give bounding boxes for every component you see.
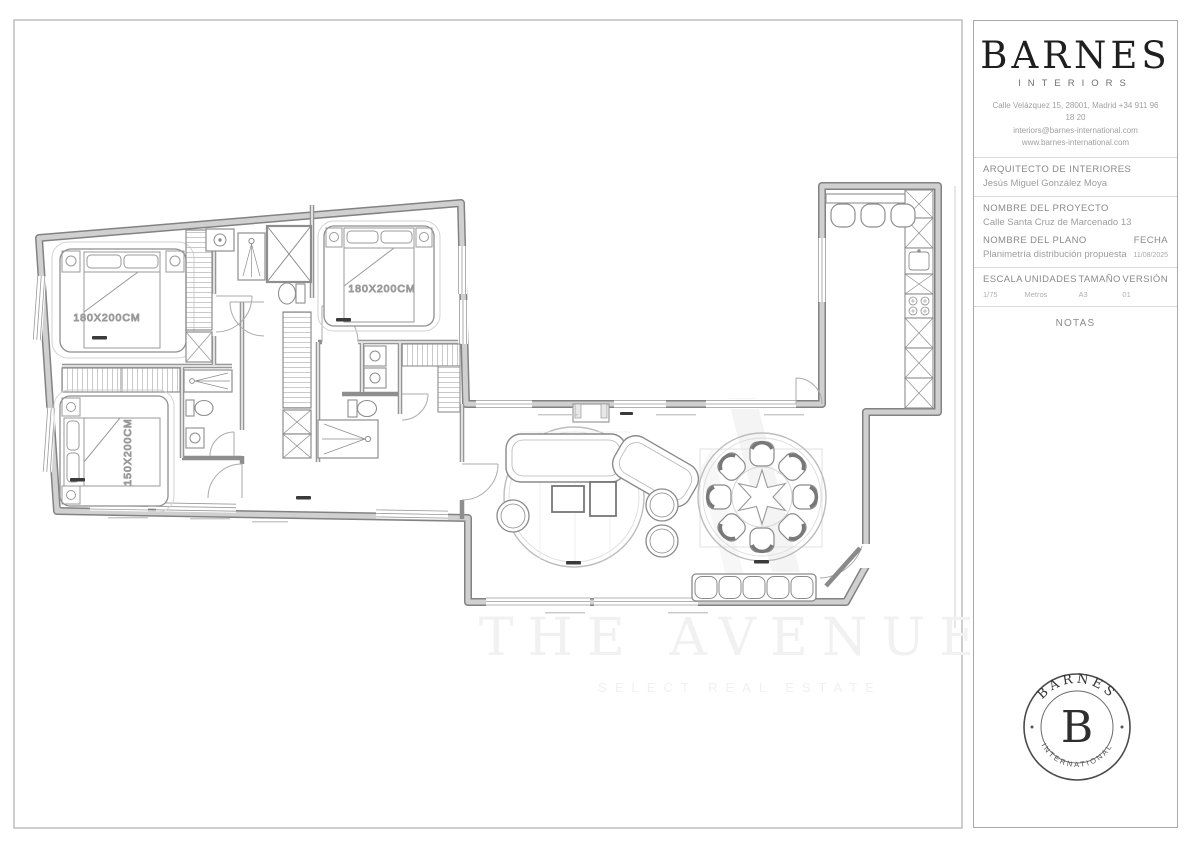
plan-sheet: 180X200CM (0, 0, 1191, 842)
date-label: FECHA (1134, 235, 1168, 246)
elevator-icon (267, 226, 311, 282)
door-bedroom3 (208, 464, 242, 498)
stamp-arc-top: BARNES (1035, 672, 1120, 703)
brand-logo: BARNES INTERIORS (974, 21, 1177, 89)
stamp: BARNES INTERNATIONAL B (1020, 669, 1134, 790)
door-bath3 (210, 432, 234, 456)
bedroom-1: 180X200CM (52, 242, 194, 358)
date-value: 11/08/2025 (1133, 252, 1168, 259)
title-block-panel: BARNES INTERIORS Calle Velázquez 15, 280… (973, 20, 1178, 828)
spec-unidades: UNIDADES Metros (1025, 274, 1077, 299)
spec-tamano: TAMAÑO A3 (1078, 274, 1120, 299)
door-closet2 (402, 394, 428, 420)
shower-icon (318, 420, 378, 458)
bed-size-label-2: 180X200CM (348, 283, 415, 295)
divider (974, 157, 1177, 158)
vanity-basin (364, 368, 386, 388)
walkin-closet (402, 344, 460, 412)
bar-stool (831, 204, 855, 227)
door-bedroom1 (216, 296, 252, 332)
project-section: NOMBRE DEL PROYECTO Calle Santa Cruz de … (974, 203, 1177, 228)
window-bottom-2 (156, 501, 236, 512)
wall-pillar (573, 404, 609, 422)
divider (974, 196, 1177, 197)
window-bed2-right-1 (457, 246, 467, 294)
barnes-stamp-seal: BARNES INTERNATIONAL B (1020, 669, 1134, 785)
toilet-icon (279, 283, 306, 304)
bed-size-label-3: 150X200CM (122, 418, 134, 485)
spec-escala: ESCALA 1/75 (983, 274, 1023, 299)
brand-name: BARNES (974, 37, 1177, 74)
window-living-top-3 (706, 399, 796, 409)
unidades-value: Metros (1025, 290, 1077, 299)
bedroom-3: 150X200CM (54, 368, 180, 512)
stove-icon (905, 294, 933, 318)
window-living-bottom-1 (486, 596, 590, 607)
bathroom-hall (206, 226, 311, 304)
unidades-label: UNIDADES (1025, 274, 1077, 285)
contact-address: Calle Velázquez 15, 28001, Madrid +34 91… (974, 100, 1177, 112)
bar-stool (861, 204, 885, 227)
watermark-subtitle: SELECT REAL ESTATE (598, 680, 882, 695)
bed-size-label-1: 180X200CM (73, 312, 140, 324)
living-room (497, 427, 704, 567)
floor-plan-drawing: 180X200CM (0, 0, 970, 842)
divider (974, 267, 1177, 268)
bathroom-2 (318, 344, 460, 458)
vanity-basin (364, 346, 386, 366)
architect-value: Jesús Miguel González Moya (983, 178, 1168, 189)
project-label: NOMBRE DEL PROYECTO (983, 203, 1168, 214)
contact-phone: 18 20 (974, 112, 1177, 124)
corridor-closet (283, 312, 311, 458)
version-value: 01 (1122, 290, 1168, 299)
escala-label: ESCALA (983, 274, 1023, 285)
plan-name-section: NOMBRE DEL PLANO FECHA Planimetría distr… (974, 235, 1177, 260)
spec-version: VERSIÓN 01 (1122, 274, 1168, 299)
kitchen-counter (826, 194, 915, 227)
version-label: VERSIÓN (1122, 274, 1168, 285)
toilet-icon (186, 400, 213, 416)
plan-name-label: NOMBRE DEL PLANO (983, 235, 1087, 246)
project-value: Calle Santa Cruz de Marcenado 13 (983, 217, 1168, 228)
window-living-bottom-2 (594, 596, 698, 607)
contact-info: Calle Velázquez 15, 28001, Madrid +34 91… (974, 100, 1177, 150)
sink-icon (186, 428, 204, 448)
notes-label: NOTAS (974, 318, 1177, 329)
window-bed2-right-2 (458, 300, 468, 344)
escala-value: 1/75 (983, 290, 1023, 299)
svg-text:BARNES: BARNES (1035, 672, 1120, 703)
bedroom-2: 180X200CM (318, 221, 440, 331)
window-bottom-3 (376, 508, 448, 519)
shower-icon (184, 370, 232, 392)
architect-label: ARQUITECTO DE INTERIORES (983, 164, 1168, 175)
door-entry (230, 302, 264, 336)
divider (974, 306, 1177, 307)
contact-email: interiors@barnes-international.com (974, 125, 1177, 137)
bathroom-3 (184, 370, 232, 448)
window-living-top-1 (476, 399, 532, 409)
plan-name-value: Planimetría distribución propuesta (983, 249, 1127, 260)
specs-row: ESCALA 1/75 UNIDADES Metros TAMAÑO A3 VE… (974, 274, 1177, 299)
coffee-table (590, 482, 616, 516)
brand-subtitle: INTERIORS (974, 78, 1177, 89)
stamp-monogram: B (1061, 702, 1093, 753)
coffee-table (552, 486, 584, 512)
bench (692, 574, 816, 601)
toilet-icon (348, 400, 377, 417)
architect-section: ARQUITECTO DE INTERIORES Jesús Miguel Go… (974, 164, 1177, 189)
contact-website: www.barnes-international.com (974, 137, 1177, 149)
kitchen (826, 190, 933, 408)
door-living-passage (462, 464, 498, 500)
watermark-title: THE AVENUE (479, 608, 970, 668)
tamano-value: A3 (1078, 290, 1120, 299)
window-kitchen-left (817, 238, 827, 302)
tamano-label: TAMAÑO (1078, 274, 1120, 285)
window-living-top-2 (614, 399, 666, 409)
watermark: THE AVENUE SELECT REAL ESTATE (479, 608, 970, 695)
bar-stool (891, 204, 915, 227)
